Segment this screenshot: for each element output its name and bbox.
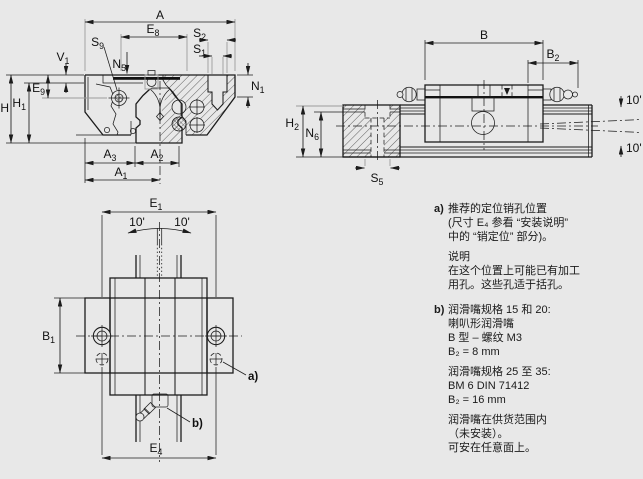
dim-label-e1: E1 <box>150 196 163 212</box>
side-view: B B2 H2 N6 S5 10' 10' <box>285 28 641 187</box>
note-line: B₂ = 16 mm <box>448 393 640 407</box>
dim-label-n6: N6 <box>305 126 319 142</box>
note-line: BM 6 DIN 71412 <box>448 379 640 393</box>
angle-label-left: 10' <box>129 215 145 229</box>
reference-arrow <box>504 88 510 95</box>
note-a: a) 推荐的定位销孔位置 (尺寸 E₄ 参看 “安装说明” 中的 “销定位” 部… <box>434 202 640 244</box>
dim-label-e4: E4 <box>150 441 163 457</box>
note-b-marker: b) <box>434 303 444 317</box>
dim-label-s1: S1 <box>193 42 206 58</box>
dim-label-s9: S9 <box>91 35 104 51</box>
note-line: 润滑嘴规格 15 和 20: <box>448 303 640 317</box>
front-section-view: A E8 S2 S1 S9 N5 V1 <box>0 8 264 184</box>
note-b: b) 润滑嘴规格 15 和 20: 喇叭形润滑嘴 B 型 – 螺纹 M3 B₂ … <box>434 303 640 359</box>
grease-nipple-right <box>543 87 578 101</box>
note-line: 润滑嘴在供货范围内 <box>448 413 640 427</box>
note-line: 中的 “销定位” 部分)。 <box>448 230 640 244</box>
dim-label-h: H <box>0 101 9 115</box>
dim-label-e8: E8 <box>147 22 160 38</box>
dim-label-a2: A2 <box>151 147 164 163</box>
note-a-marker: a) <box>434 202 444 216</box>
grease-fitting-plan <box>136 394 168 421</box>
dim-label-h2: H2 <box>285 116 299 132</box>
note-line: 喇叭形润滑嘴 <box>448 317 640 331</box>
dim-label-h1: H1 <box>12 96 26 112</box>
grease-nipple-left <box>397 87 425 101</box>
note-line: 用孔。这些孔适于括孔。 <box>448 278 640 292</box>
dim-label-b: B <box>480 28 488 42</box>
dim-label-b1: B1 <box>42 329 55 345</box>
note-remark: 说明 在这个位置上可能已有加工 用孔。这些孔适于括孔。 <box>434 250 640 292</box>
rail-end-section <box>343 100 400 163</box>
dim-label-a: A <box>156 8 164 22</box>
note-b2: 润滑嘴规格 25 至 35: BM 6 DIN 71412 B₂ = 16 mm <box>434 365 640 407</box>
note-line: (尺寸 E₄ 参看 “安装说明” <box>448 216 640 230</box>
dim-label-b2: B2 <box>547 47 560 63</box>
angle-label-right: 10' <box>174 215 190 229</box>
dim-label-v1: V1 <box>57 50 70 66</box>
seal-strip <box>113 77 180 80</box>
seal-screw <box>104 127 109 132</box>
notes-block: a) 推荐的定位销孔位置 (尺寸 E₄ 参看 “安装说明” 中的 “销定位” 部… <box>434 202 640 461</box>
note-line: 在这个位置上可能已有加工 <box>448 264 640 278</box>
plan-view: 10' 10' <box>42 196 258 462</box>
note-line: 可安在任意面上。 <box>448 441 640 455</box>
dim-label-a1: A1 <box>115 165 128 181</box>
note-line: 推荐的定位销孔位置 <box>448 202 640 216</box>
catalog-page-figure: { "meta": { "background": "#e8e8e8", "li… <box>0 0 643 479</box>
note-line: 说明 <box>448 250 640 264</box>
note-b3: 润滑嘴在供货范围内 （未安装）。 可安在任意面上。 <box>434 413 640 455</box>
angle-label-bottom: 10' <box>626 141 642 155</box>
note-line: B 型 – 螺纹 M3 <box>448 331 640 345</box>
callout-b: b) <box>192 418 203 430</box>
dim-label-n5: N5 <box>112 57 126 73</box>
callout-a: a) <box>248 371 258 383</box>
plan-dimensions: E1 B1 E4 <box>42 196 216 458</box>
dim-label-n1: N1 <box>251 79 265 95</box>
dim-label-e9: E9 <box>32 81 45 97</box>
note-line: 润滑嘴规格 25 至 35: <box>448 365 640 379</box>
dim-label-s5: S5 <box>371 171 384 187</box>
dim-label-s2: S2 <box>193 26 206 42</box>
note-line: B₂ = 8 mm <box>448 345 640 359</box>
angle-label-top: 10' <box>626 93 642 107</box>
note-line: （未安装）。 <box>448 427 640 441</box>
carriage-side-body <box>425 80 543 150</box>
dim-label-a3: A3 <box>104 147 117 163</box>
